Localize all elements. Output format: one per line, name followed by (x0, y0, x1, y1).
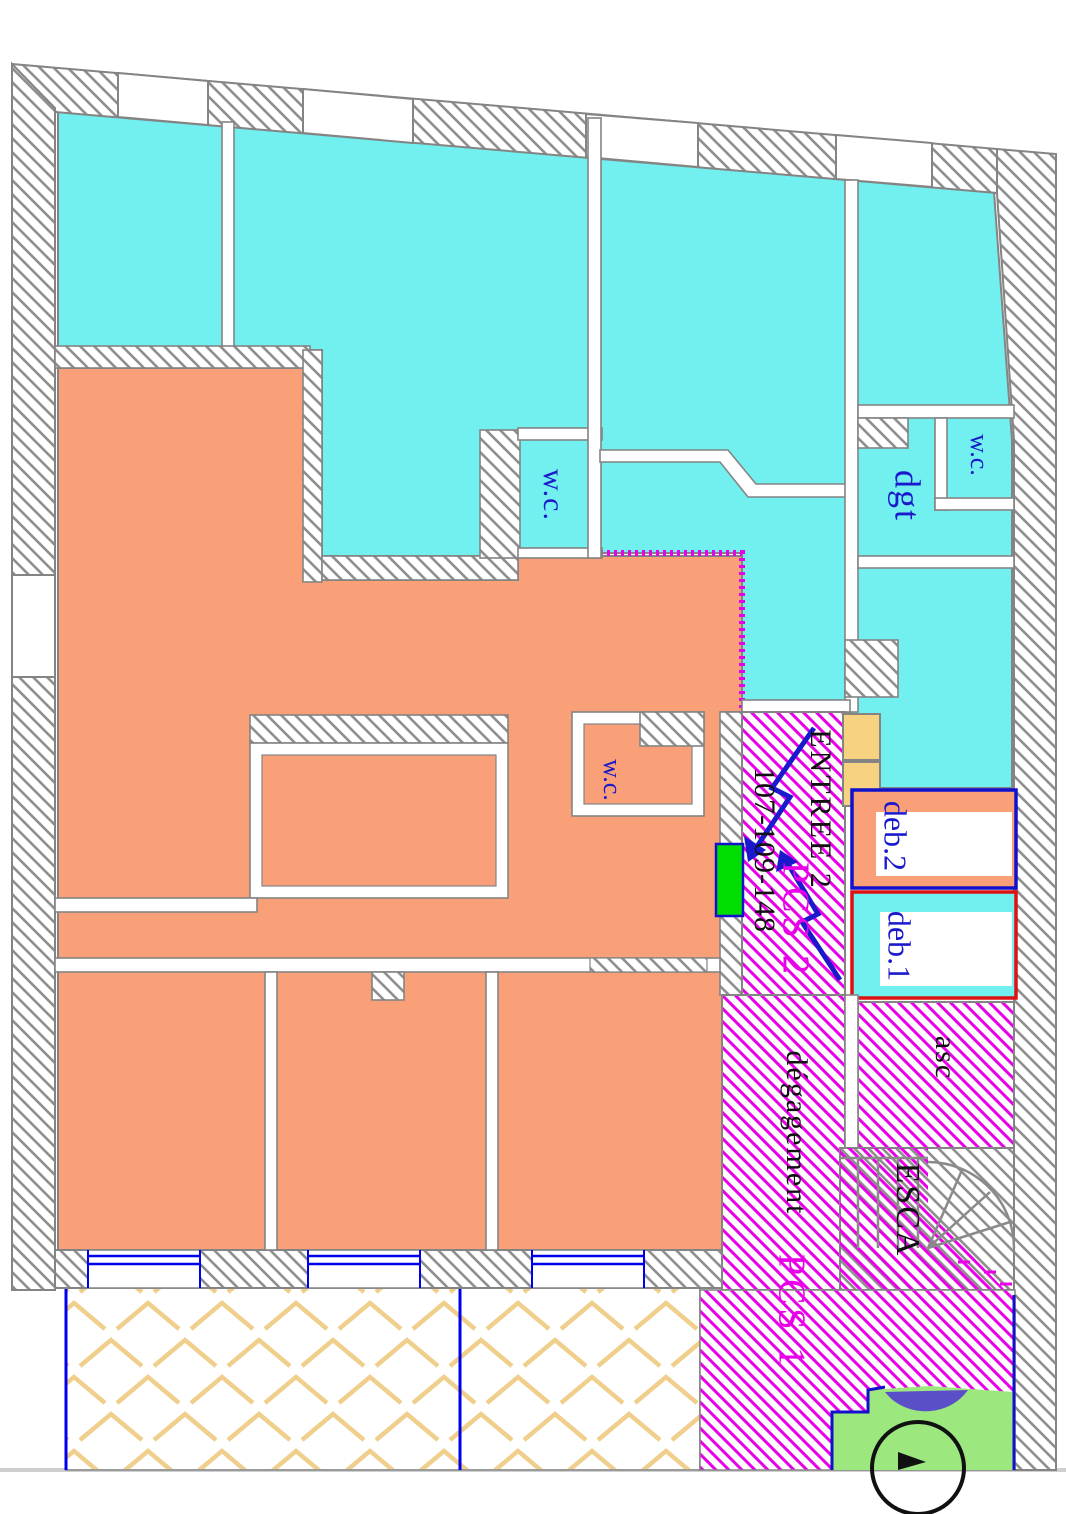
label-deb2: deb.2 (878, 801, 914, 871)
floor-plan-drawing: w.c. w.c. dgt w.c. ENTREE 2 107-109-148 … (0, 0, 1066, 1514)
label-deb1: deb.1 (882, 911, 918, 981)
window (303, 89, 413, 143)
window (586, 114, 698, 167)
deb2-room (852, 790, 1016, 888)
label-pcs2: PCS 2 (774, 862, 816, 978)
label-asc: asc (929, 1036, 962, 1080)
floor-plan-page: w.c. w.c. dgt w.c. ENTREE 2 107-109-148 … (0, 0, 1066, 1514)
door-green (716, 844, 743, 916)
label-wc-orange: w.c. (598, 759, 627, 801)
label-pcs1: PCS 1 (770, 1254, 812, 1370)
label-wc-center: w.c. (537, 469, 570, 521)
deb1-room (852, 892, 1016, 998)
label-wc-top-right: w.c. (965, 434, 994, 476)
courtyard-chevron (66, 1288, 700, 1470)
window (118, 73, 208, 125)
bottom-wall (55, 1250, 742, 1288)
label-esca: ESCA (889, 1163, 926, 1258)
label-dgt: dgt (888, 470, 928, 522)
left-window (12, 575, 55, 677)
label-degagement: dégagement (780, 1051, 813, 1216)
